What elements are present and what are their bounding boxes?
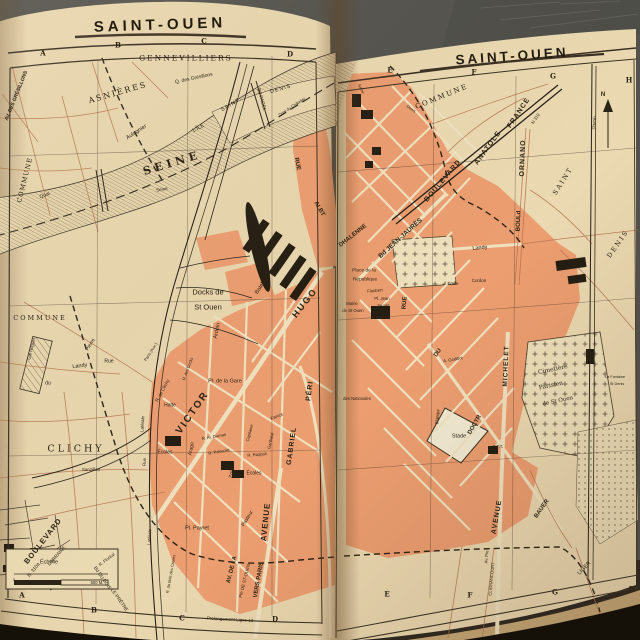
atlas-photo: ABCDABCDEFGHEFGHProlongement Ligne 13GEN… bbox=[0, 0, 640, 640]
map-artwork bbox=[0, 0, 640, 640]
photo-shading bbox=[0, 0, 640, 640]
